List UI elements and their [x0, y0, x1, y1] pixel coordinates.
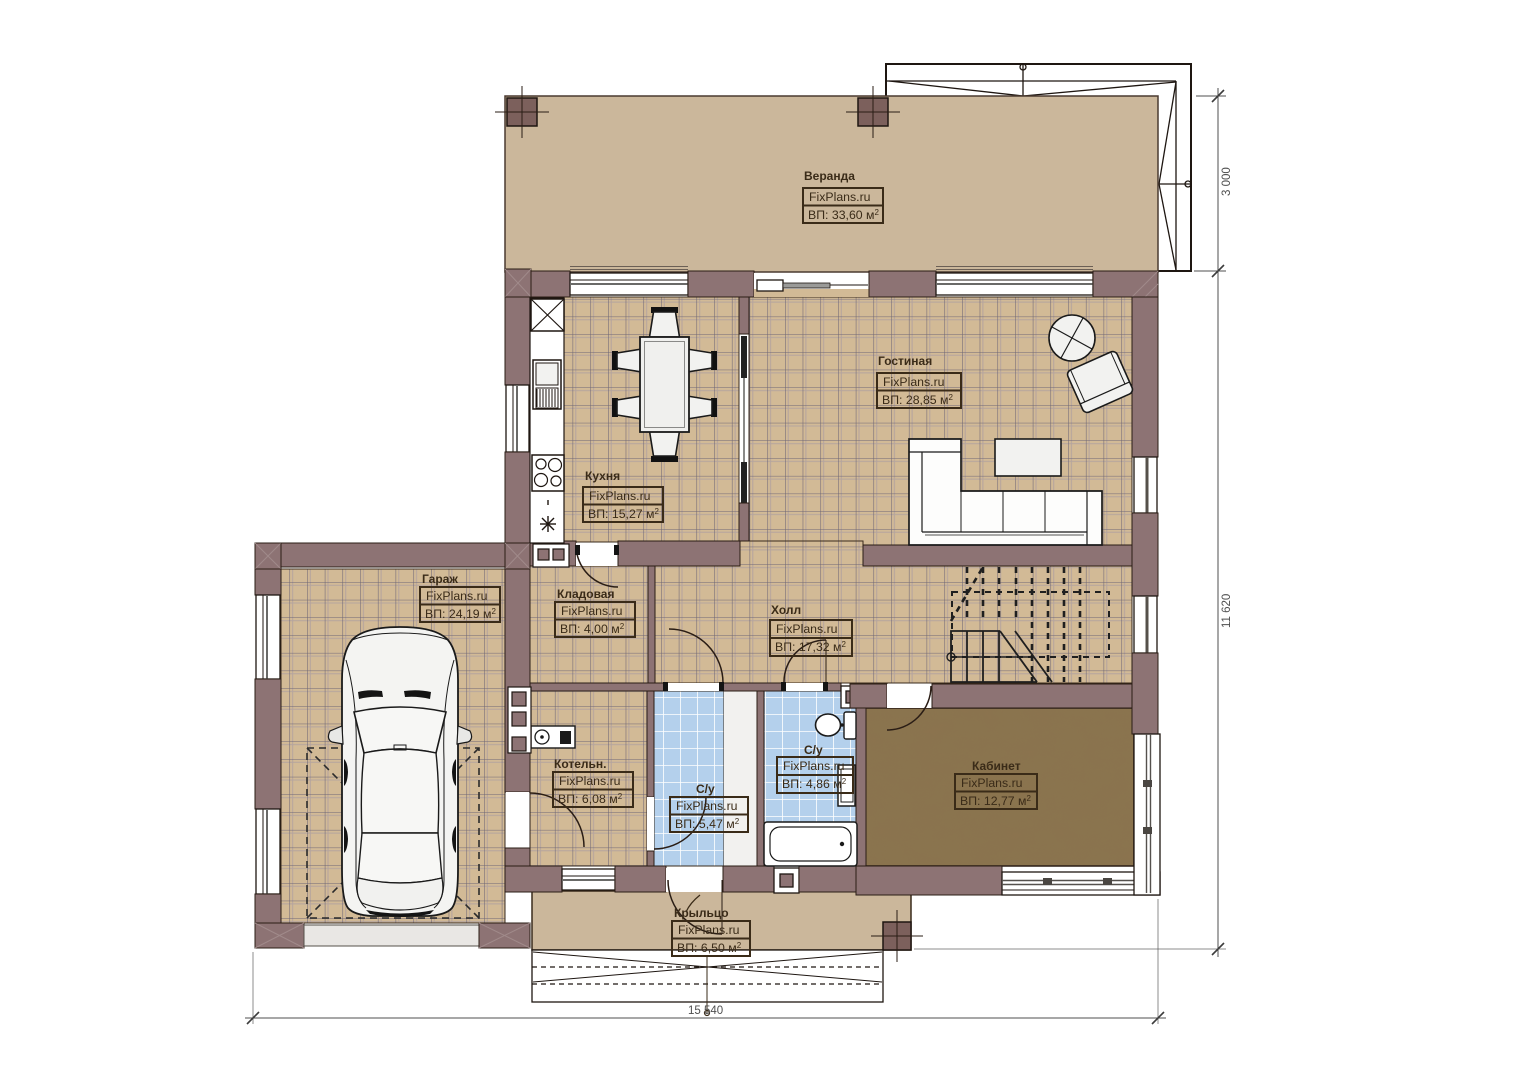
svg-text:Кладовая: Кладовая	[557, 587, 614, 601]
svg-text:С/у: С/у	[804, 743, 823, 757]
svg-text:ВП: 6,08 м2: ВП: 6,08 м2	[558, 792, 623, 806]
svg-text:FixPlans.ru: FixPlans.ru	[678, 923, 740, 937]
svg-text:11 620: 11 620	[1221, 594, 1233, 628]
svg-text:ВП: 6,50 м2: ВП: 6,50 м2	[677, 941, 742, 955]
svg-text:ВП: 12,77 м2: ВП: 12,77 м2	[960, 794, 1032, 808]
svg-text:Веранда: Веранда	[804, 169, 855, 183]
svg-text:Гараж: Гараж	[422, 572, 458, 586]
svg-text:Кабинет: Кабинет	[972, 759, 1021, 773]
svg-text:Гостиная: Гостиная	[878, 354, 932, 368]
svg-text:FixPlans.ru: FixPlans.ru	[589, 489, 651, 503]
svg-text:Холл: Холл	[771, 603, 801, 617]
svg-text:ВП: 4,00 м2: ВП: 4,00 м2	[560, 622, 625, 636]
svg-text:FixPlans.ru: FixPlans.ru	[559, 774, 621, 788]
svg-text:ВП: 15,27 м2: ВП: 15,27 м2	[588, 507, 660, 521]
svg-text:Кухня: Кухня	[585, 469, 620, 483]
svg-text:ВП: 17,32 м2: ВП: 17,32 м2	[775, 640, 847, 654]
svg-text:ВП: 4,86 м2: ВП: 4,86 м2	[782, 777, 847, 791]
svg-text:15 540: 15 540	[688, 1005, 723, 1017]
svg-text:ВП: 24,19 м2: ВП: 24,19 м2	[425, 607, 497, 621]
svg-text:С/у: С/у	[696, 782, 715, 796]
svg-text:ВП: 5,47 м2: ВП: 5,47 м2	[675, 817, 740, 831]
svg-text:ВП: 28,85 м2: ВП: 28,85 м2	[882, 393, 954, 407]
svg-text:Котельн.: Котельн.	[554, 757, 607, 771]
svg-text:FixPlans.ru: FixPlans.ru	[776, 622, 838, 636]
svg-text:FixPlans.ru: FixPlans.ru	[426, 589, 488, 603]
svg-text:FixPlans.ru: FixPlans.ru	[883, 375, 945, 389]
svg-text:FixPlans.ru: FixPlans.ru	[961, 776, 1023, 790]
svg-text:FixPlans.ru: FixPlans.ru	[783, 759, 845, 773]
svg-text:3 000: 3 000	[1221, 167, 1233, 196]
svg-text:FixPlans.ru: FixPlans.ru	[561, 604, 623, 618]
svg-text:FixPlans.ru: FixPlans.ru	[809, 190, 871, 204]
svg-text:FixPlans.ru: FixPlans.ru	[676, 799, 738, 813]
svg-text:ВП: 33,60 м2: ВП: 33,60 м2	[808, 208, 880, 222]
svg-text:Крыльцо: Крыльцо	[674, 906, 729, 920]
